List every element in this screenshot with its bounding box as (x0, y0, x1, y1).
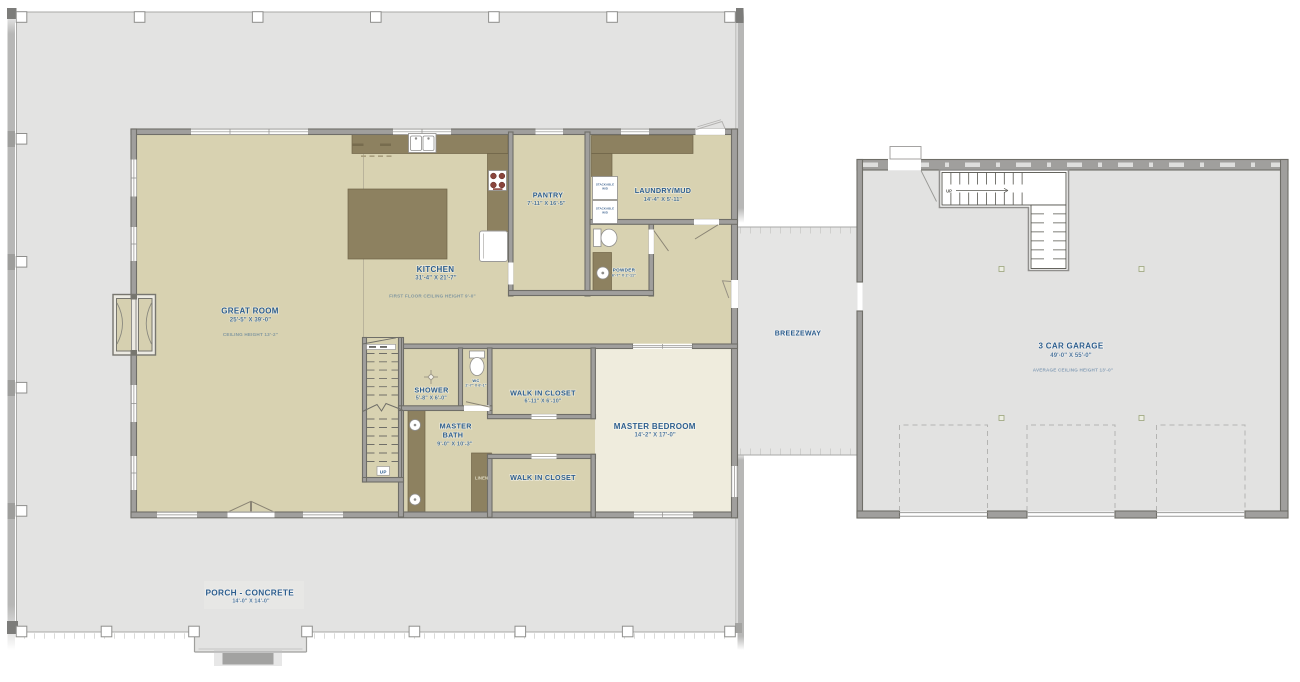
svg-text:PANTRY: PANTRY (533, 190, 564, 199)
svg-text:6'-7" X 2'-11": 6'-7" X 2'-11" (612, 273, 636, 277)
svg-text:31'-4" X 21'-7": 31'-4" X 21'-7" (415, 276, 456, 282)
svg-text:MASTER: MASTER (440, 421, 473, 430)
svg-text:LAUNDRY/MUD: LAUNDRY/MUD (635, 186, 692, 195)
svg-text:25'-5" X 39'-0": 25'-5" X 39'-0" (230, 318, 271, 324)
svg-text:UP: UP (380, 469, 387, 474)
svg-text:MASTER BEDROOM: MASTER BEDROOM (614, 422, 696, 431)
svg-text:FIRST FLOOR CEILING HEIGHT 9'-: FIRST FLOOR CEILING HEIGHT 9'-0" (389, 293, 476, 298)
svg-text:14'-2" X 17'-0": 14'-2" X 17'-0" (634, 433, 675, 439)
svg-text:AVERAGE CEILING HEIGHT 13'-0": AVERAGE CEILING HEIGHT 13'-0" (1033, 368, 1113, 373)
svg-text:SHOWER: SHOWER (414, 386, 449, 395)
svg-text:CEILING HEIGHT 13'-2": CEILING HEIGHT 13'-2" (223, 332, 278, 337)
svg-text:3 CAR GARAGE: 3 CAR GARAGE (1039, 342, 1104, 351)
svg-text:WALK IN CLOSET: WALK IN CLOSET (510, 388, 576, 397)
svg-text:WALK IN CLOSET: WALK IN CLOSET (510, 473, 576, 482)
svg-text:5'-8" X 6'-0": 5'-8" X 6'-0" (416, 395, 447, 401)
svg-text:BATH: BATH (443, 430, 464, 439)
svg-text:14'-0" X 14'-0": 14'-0" X 14'-0" (232, 599, 270, 605)
svg-text:49'-0" X 55'-0": 49'-0" X 55'-0" (1050, 353, 1091, 359)
svg-text:14'-4" X 5'-11": 14'-4" X 5'-11" (644, 197, 683, 203)
svg-text:KITCHEN: KITCHEN (417, 265, 455, 274)
svg-text:LINEN: LINEN (475, 476, 488, 481)
svg-text:W/D: W/D (602, 186, 609, 190)
svg-text:9'-0" X 10'-3": 9'-0" X 10'-3" (437, 442, 473, 448)
svg-text:POWDER: POWDER (613, 268, 636, 273)
svg-text:2'-7" X 6'-1": 2'-7" X 6'-1" (465, 383, 486, 387)
svg-text:6'-11" X 6'-10": 6'-11" X 6'-10" (524, 398, 561, 404)
svg-text:W/D: W/D (602, 210, 609, 214)
svg-text:PORCH - CONCRETE: PORCH - CONCRETE (205, 588, 294, 598)
svg-text:UP: UP (946, 188, 952, 193)
svg-text:7'-11" X 16'-5": 7'-11" X 16'-5" (527, 201, 566, 207)
svg-text:GREAT ROOM: GREAT ROOM (221, 307, 279, 316)
svg-text:BREEZEWAY: BREEZEWAY (775, 330, 821, 337)
